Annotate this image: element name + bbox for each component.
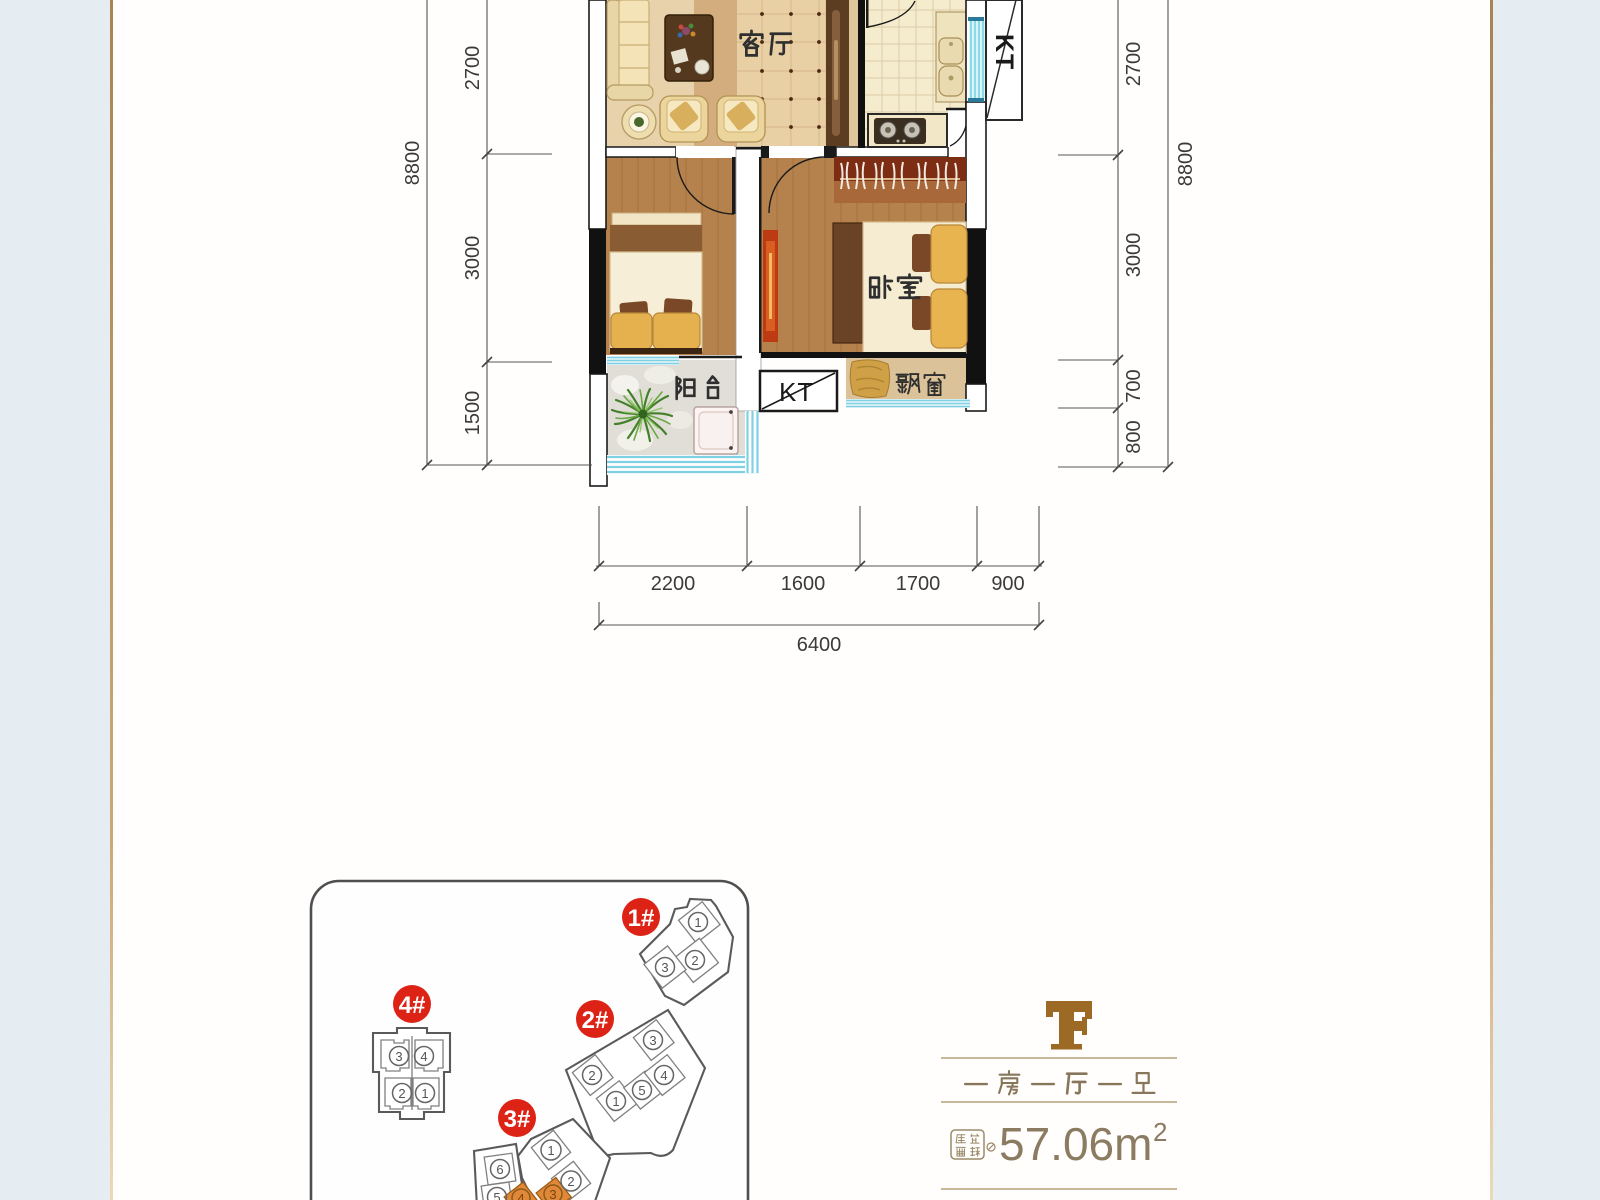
svg-text:1: 1: [612, 1094, 619, 1109]
svg-text:2200: 2200: [651, 573, 696, 595]
svg-text:1#: 1#: [628, 905, 655, 932]
svg-text:5: 5: [638, 1083, 645, 1098]
svg-text:1500: 1500: [462, 391, 484, 436]
svg-text:900: 900: [991, 573, 1024, 595]
svg-text:2: 2: [588, 1068, 595, 1083]
svg-text:3: 3: [395, 1049, 402, 1064]
svg-text:2700: 2700: [1123, 42, 1145, 87]
svg-text:3: 3: [549, 1187, 556, 1200]
svg-text:2: 2: [567, 1174, 574, 1189]
svg-text:2: 2: [398, 1086, 405, 1101]
svg-text:KT: KT: [990, 34, 1018, 71]
svg-text:5: 5: [493, 1190, 500, 1200]
svg-text:8800: 8800: [1175, 142, 1197, 187]
svg-text:3: 3: [649, 1033, 656, 1048]
svg-text:1700: 1700: [896, 573, 941, 595]
svg-text:4: 4: [517, 1191, 524, 1200]
svg-text:4: 4: [660, 1068, 667, 1083]
svg-text:3000: 3000: [462, 236, 484, 281]
svg-text:KT: KT: [779, 377, 814, 407]
svg-text:800: 800: [1123, 420, 1145, 453]
svg-text:4#: 4#: [399, 992, 426, 1019]
svg-text:8800: 8800: [402, 141, 424, 186]
svg-text:2700: 2700: [462, 46, 484, 91]
svg-text:2#: 2#: [582, 1007, 609, 1034]
svg-text:3: 3: [661, 960, 668, 975]
svg-text:1: 1: [547, 1143, 554, 1158]
svg-text:3000: 3000: [1123, 233, 1145, 278]
svg-text:6400: 6400: [797, 634, 842, 656]
svg-text:2: 2: [691, 953, 698, 968]
svg-text:4: 4: [420, 1049, 427, 1064]
svg-text:3#: 3#: [504, 1106, 531, 1133]
svg-text:1: 1: [421, 1086, 428, 1101]
svg-text:1600: 1600: [781, 573, 826, 595]
svg-text:57.06m: 57.06m: [999, 1118, 1152, 1170]
svg-text:1: 1: [694, 915, 701, 930]
svg-text:700: 700: [1123, 369, 1145, 402]
svg-text:2: 2: [1153, 1117, 1167, 1147]
svg-text:6: 6: [496, 1162, 503, 1177]
